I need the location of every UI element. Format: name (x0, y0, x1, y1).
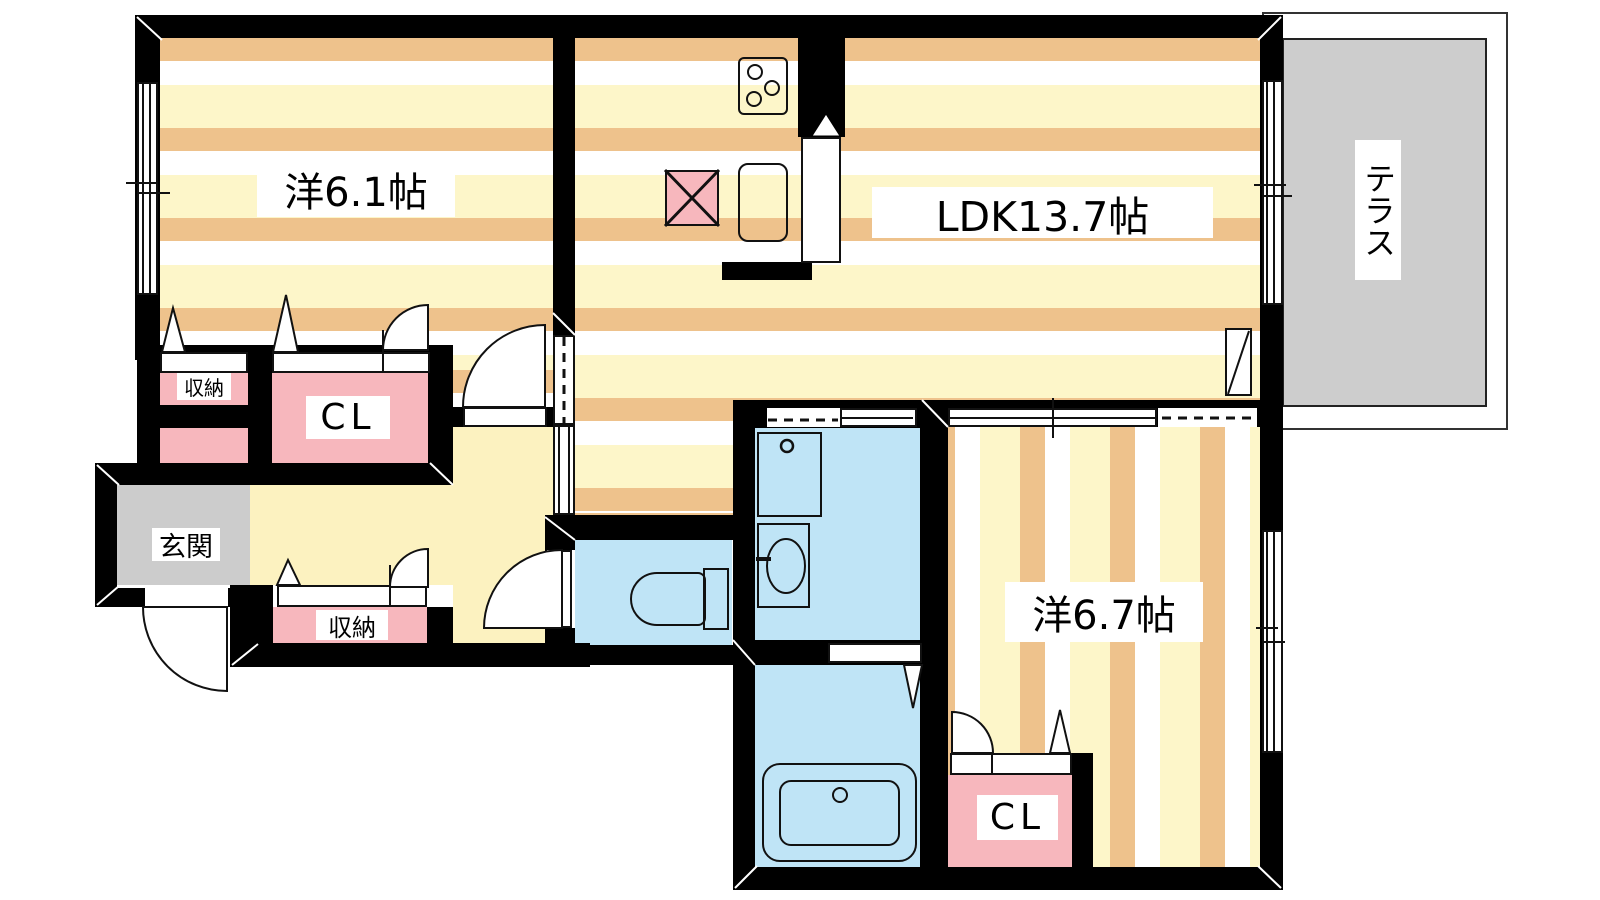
room-label-closet-upper: CL (306, 396, 390, 439)
room-label-closet-lower-text: CL (990, 797, 1045, 838)
room-label-western2: 洋6.7帖 (1005, 582, 1203, 642)
floor-plan: 洋6.1帖 LDK13.7帖 洋6.7帖 テラス 玄関 収納 収納 CL CL (0, 0, 1600, 900)
room-label-storage-lower-text: 収納 (328, 608, 376, 643)
room-label-entrance-text: 玄関 (159, 525, 213, 564)
room-label-closet-lower: CL (977, 795, 1058, 840)
room-label-western1-text: 洋6.1帖 (284, 160, 428, 218)
room-label-western2-text: 洋6.7帖 (1032, 583, 1176, 641)
room-label-storage-lower: 収納 (316, 610, 388, 640)
room-label-storage-upper: 収納 (177, 373, 231, 400)
room-label-terrace: テラス (1355, 140, 1401, 280)
room-label-ldk: LDK13.7帖 (872, 187, 1213, 238)
room-label-closet-upper-text: CL (320, 397, 375, 438)
room-label-western1: 洋6.1帖 (257, 160, 455, 217)
room-label-ldk-text: LDK13.7帖 (936, 183, 1150, 243)
room-label-terrace-text: テラス (1355, 162, 1401, 258)
symbols-overlay (0, 0, 1600, 900)
room-label-storage-upper-text: 収納 (184, 372, 224, 401)
room-label-entrance: 玄関 (152, 528, 220, 561)
